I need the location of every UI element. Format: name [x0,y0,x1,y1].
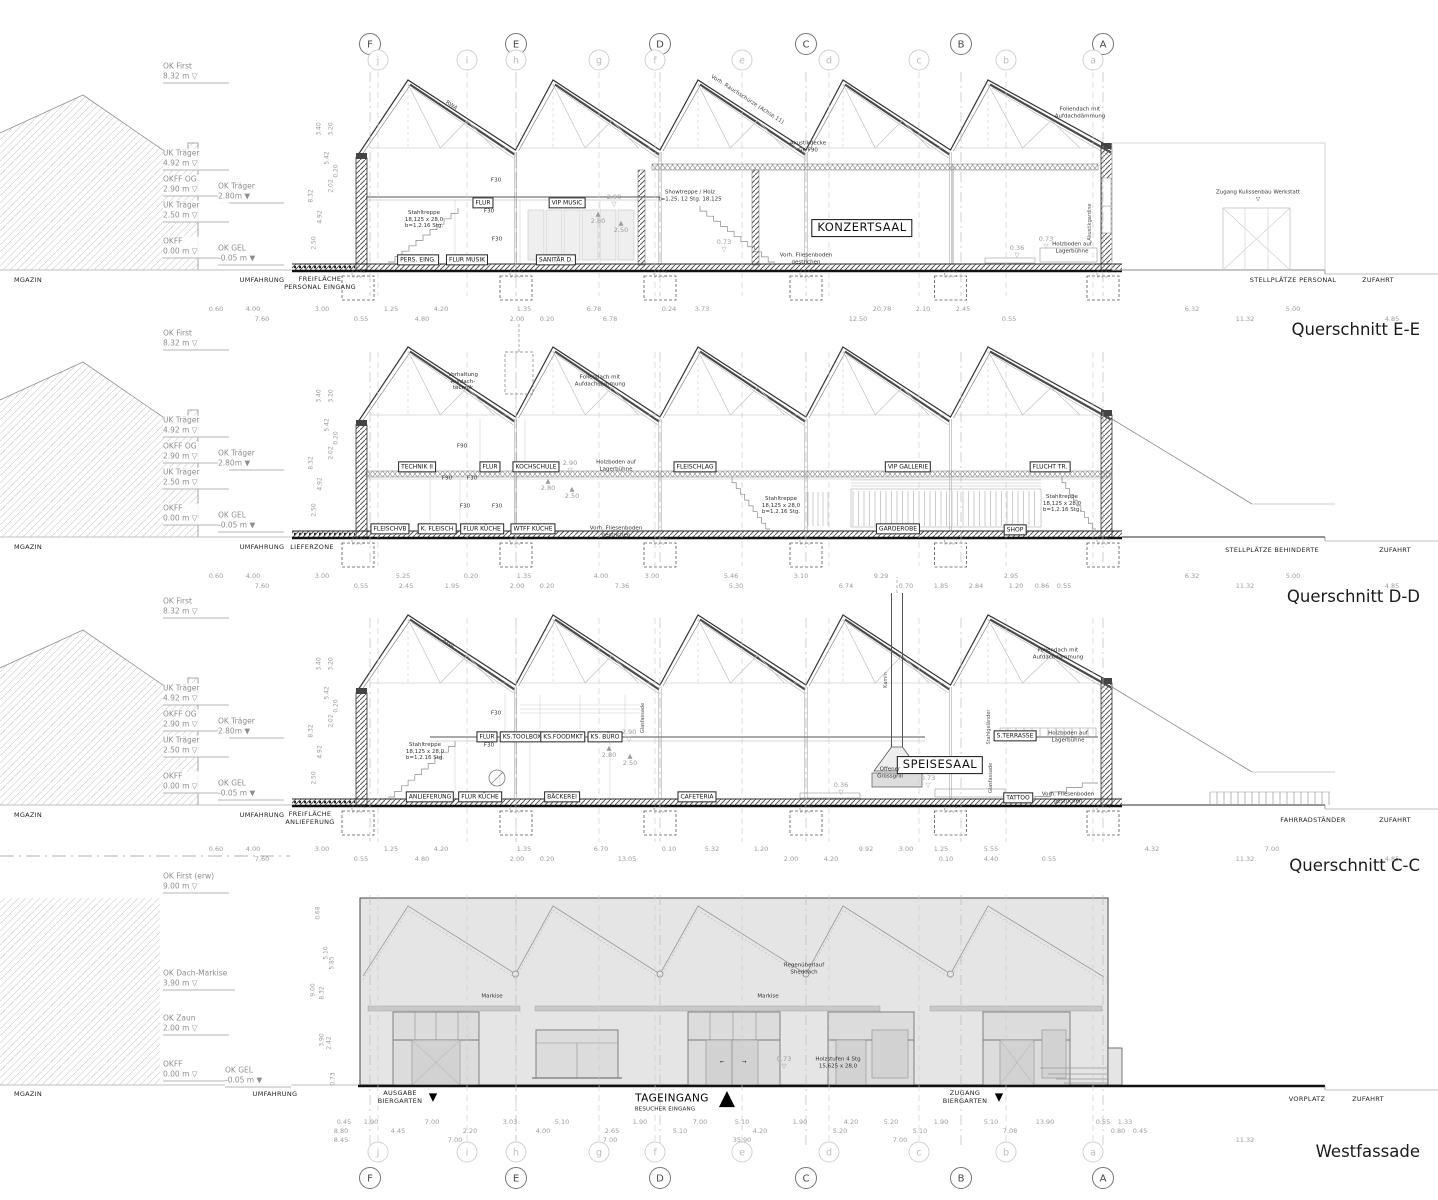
grid-bubble: i [457,50,477,70]
grid-bubble: g [589,1142,609,1162]
svg-text:c: c [916,1148,921,1159]
grid-bubble: F [360,1168,381,1189]
grid-bubble: C [796,1168,817,1189]
querschnitt-dd [0,322,1438,567]
svg-text:C: C [803,1174,810,1185]
svg-text:g: g [596,1148,602,1159]
grid-bubble: h [506,50,526,70]
grid-bubble: c [909,50,929,70]
grid-bubble: B [951,34,972,55]
svg-text:B: B [958,1174,965,1185]
svg-text:E: E [513,40,519,51]
svg-text:c: c [916,56,921,67]
grid-bubble: d [819,50,839,70]
grid-bubble: j [368,1142,388,1162]
svg-text:F: F [367,1174,373,1185]
svg-text:g: g [596,56,602,67]
svg-text:j: j [376,56,380,67]
querschnitt-cc [0,577,1438,835]
grid-bubble: e [732,50,752,70]
svg-text:A: A [1100,1174,1107,1185]
svg-text:D: D [656,1174,664,1185]
svg-text:a: a [1090,56,1096,67]
svg-text:i: i [466,1148,469,1159]
grid-bubble: A [1093,1168,1114,1189]
svg-text:C: C [803,40,810,51]
svg-text:D: D [656,40,664,51]
grid-bubble: a [1083,50,1103,70]
grid-bubble: C [796,34,817,55]
svg-text:e: e [739,1148,745,1159]
grid-bubble: D [650,1168,671,1189]
grid-bubble: c [909,1142,929,1162]
svg-text:h: h [513,56,519,67]
architectural-drawing-sheet: FFEEDDCCBBAAjjiihhggffeeddccbbaa Quersch… [0,0,1438,1200]
svg-text:e: e [739,56,745,67]
svg-text:d: d [826,56,832,67]
drawing-canvas: FFEEDDCCBBAAjjiihhggffeeddccbbaa [0,0,1438,1200]
svg-text:A: A [1100,40,1107,51]
svg-text:E: E [513,1174,519,1185]
grid-bubble: h [506,1142,526,1162]
svg-text:B: B [958,40,965,51]
grid-bubble: b [996,1142,1016,1162]
svg-text:j: j [376,1148,380,1159]
grid-bubble: g [589,50,609,70]
grid-bubble: i [457,1142,477,1162]
svg-text:b: b [1003,56,1009,67]
westfassade-drawing [0,856,1438,1090]
grid-bubble: e [732,1142,752,1162]
grid-bubble: b [996,50,1016,70]
svg-text:i: i [466,56,469,67]
grid-bubble: a [1083,1142,1103,1162]
svg-text:F: F [367,40,373,51]
querschnitt-ee [0,80,1438,300]
grid-bubble: f [645,1142,665,1162]
svg-text:d: d [826,1148,832,1159]
svg-text:a: a [1090,1148,1096,1159]
grid-bubble: f [645,50,665,70]
svg-text:b: b [1003,1148,1009,1159]
svg-text:h: h [513,1148,519,1159]
grid-bubble: d [819,1142,839,1162]
grid-bubble: B [951,1168,972,1189]
grid-bubble: j [368,50,388,70]
grid-bubble: E [506,1168,527,1189]
